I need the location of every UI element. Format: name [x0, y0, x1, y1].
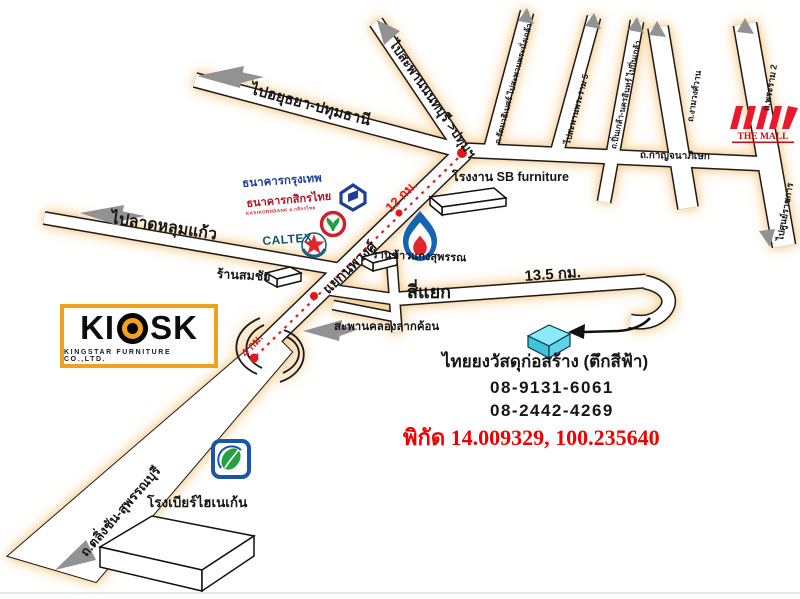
- kiosk-target-icon: [117, 313, 148, 344]
- route-map: THE MALL ไปอยุธยา-ปทุมธานี ไปสะพานนนทบุร…: [0, 0, 800, 599]
- kiosk-logo: KI SK KINGSTAR FURNITURE CO.,LTD.: [60, 304, 218, 368]
- nopphawong-dot: [310, 292, 318, 300]
- distance-13-5km: 13.5 กม.: [524, 265, 581, 284]
- phone-number-2: 08-2442-4269: [490, 402, 614, 419]
- place-label-sb-furniture: โรงงาน SB furniture: [452, 171, 569, 184]
- gps-coordinates: พิกัด 14.009329, 100.235640: [403, 427, 660, 449]
- bangkok-bank-logo: [341, 185, 365, 210]
- road-label-kanchanaphisek: ถ.กาญจนาภิเษก: [640, 151, 710, 162]
- bottom-divider: [0, 592, 800, 594]
- phone-number-1: 08-9131-6061: [490, 379, 614, 396]
- thaiyong-title: ไทยยงวัสดุก่อสร้าง (ตึกสีฟ้า): [442, 353, 648, 370]
- building-sb-furniture: [430, 188, 506, 215]
- caltex-label: CALTEX: [262, 232, 313, 247]
- kiosk-subtitle: KINGSTAR FURNITURE CO.,LTD.: [64, 349, 214, 363]
- junction-label-si-yaek: สี่แยก: [407, 283, 451, 301]
- bangchak-logo: [213, 441, 249, 477]
- kiosk-text-right: SK: [150, 309, 198, 347]
- kasikornbank-logo: [322, 213, 345, 236]
- building-somchai-shop: [266, 267, 301, 287]
- the-mall-logo: THE MALL: [730, 106, 798, 143]
- kiosk-wordmark: KI SK: [80, 309, 198, 347]
- place-label-heineken: โรงเบียร์ไฮเนเก้น: [147, 496, 247, 510]
- the-mall-label: THE MALL: [738, 132, 789, 142]
- kiosk-text-left: KI: [80, 309, 115, 347]
- place-label-somchai: ร้านสมชัย: [216, 268, 271, 283]
- bridge-label: สะพานคลองลากค้อน: [334, 322, 439, 334]
